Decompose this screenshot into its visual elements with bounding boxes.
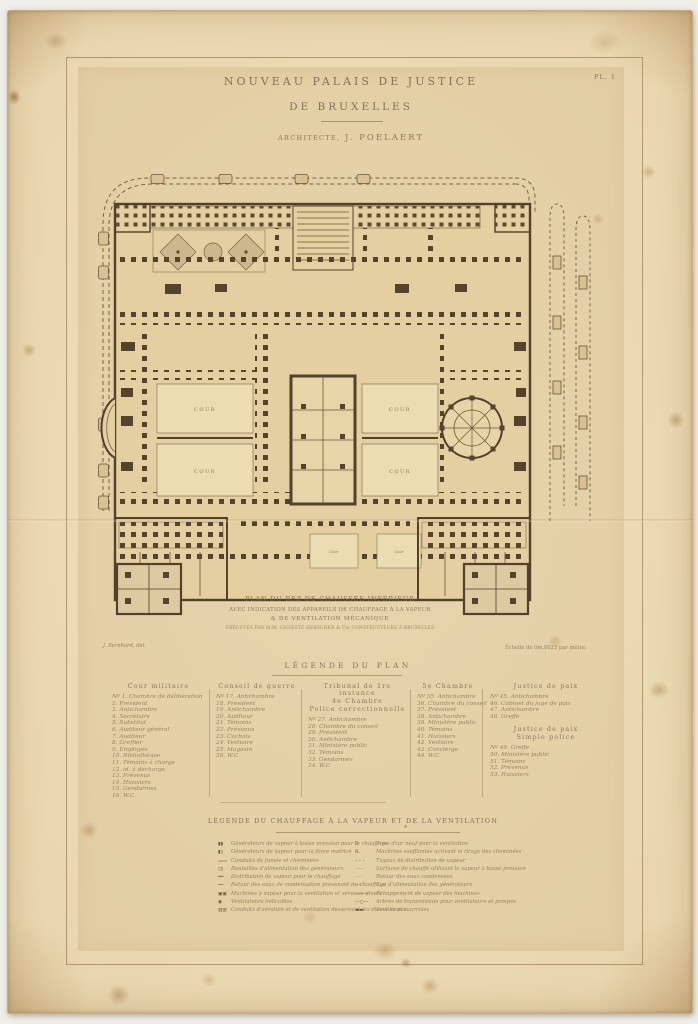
legend-item: R. Machines soufflantes activant le tira… bbox=[355, 849, 545, 857]
legend-item: ╍╍ Retour des eaux de condensation prove… bbox=[218, 882, 368, 890]
legend-column-title: Cour militaire bbox=[112, 683, 205, 690]
title-divider bbox=[321, 121, 383, 122]
legend-column-title: Simple police bbox=[490, 734, 602, 741]
legend-items: Nº 27. Antichambre28. Chambre du conseil… bbox=[308, 717, 407, 770]
legend-item: Nº 17. Antichambre bbox=[216, 694, 298, 701]
small-court-label: Cour bbox=[395, 550, 404, 554]
legend-item: 21. Témoins bbox=[216, 720, 298, 727]
legend-items: Nº 49. Greffe50. Ministère public51. Tém… bbox=[490, 745, 602, 778]
legend-item: 53. Huissiers bbox=[490, 772, 602, 779]
legend-item: 26. W.C. bbox=[216, 753, 298, 760]
rotunda-icon bbox=[440, 396, 505, 461]
legend-items: Nº 45. Antichambre46. Cabinet du juge de… bbox=[490, 694, 602, 720]
legend-symbol-icon: ◉ bbox=[218, 900, 231, 905]
legend-symbol-icon: ——— bbox=[355, 892, 376, 897]
legend-item: 41. Huissiers bbox=[417, 734, 479, 741]
legend-item: 2. Président bbox=[112, 701, 205, 708]
column-divider bbox=[301, 689, 302, 797]
paper-sheet: PL. 1 NOUVEAU PALAIS DE JUSTICE DE BRUXE… bbox=[7, 10, 693, 1014]
courtyard-label: COUR bbox=[389, 469, 411, 475]
legend-item: Nº 27. Antichambre bbox=[308, 717, 407, 724]
legend-item: 23. Cachots bbox=[216, 734, 298, 741]
legend-item: 24. Vestiaire bbox=[216, 740, 298, 747]
legend-item: ▣▣ Machines à vapeur pour la ventilation… bbox=[218, 891, 368, 899]
legend-item: 48. Greffe bbox=[490, 714, 602, 721]
legend-item: 52. Prévenus bbox=[490, 765, 602, 772]
architect-prefix: ARCHITECTE, bbox=[278, 134, 340, 142]
legend-item: 7. Auditeur bbox=[112, 734, 205, 741]
legend-item: 43. Concierge bbox=[417, 747, 479, 754]
courtyard-label: COUR bbox=[389, 407, 411, 413]
legend-items: Nº 1. Chambre de délibération2. Présiden… bbox=[112, 694, 205, 800]
legend-column-title: Tribunal de 1re instance bbox=[308, 683, 407, 697]
legend-item: 6. Auditeur général bbox=[112, 727, 205, 734]
legend-item: 37. Président bbox=[417, 707, 479, 714]
legend-symbol-icon: —○— bbox=[355, 900, 376, 905]
legend-column-title: 5e Chambre bbox=[417, 683, 479, 690]
caption-line: & DE VENTILATION MÉCANIQUE bbox=[220, 616, 440, 622]
legend-item: 4. Secrétaire bbox=[112, 714, 205, 721]
floor-plan-drawing: COUR COUR COUR COUR bbox=[95, 166, 600, 616]
legend-item: 11. Témoins à charge bbox=[112, 760, 205, 767]
legend-symbol-icon: ▯▯ bbox=[218, 867, 231, 872]
legend-symbol-icon: ══ bbox=[218, 875, 231, 880]
caption-line: AVEC INDICATION DES APPAREILS DE CHAUFFA… bbox=[220, 607, 440, 613]
architect-line: ARCHITECTE, J. POELAERT bbox=[78, 133, 624, 143]
legend-symbol-icon: ╍╍ bbox=[218, 883, 231, 888]
heading-rule bbox=[272, 675, 402, 676]
page-subtitle: DE BRUXELLES bbox=[78, 101, 624, 113]
legend-item: 42. Vestiaire bbox=[417, 740, 479, 747]
courtyard-label: COUR bbox=[194, 407, 216, 413]
column-divider bbox=[410, 689, 411, 797]
legend-item: 5. Substitut bbox=[112, 720, 205, 727]
rail-sidings-icon bbox=[550, 204, 590, 521]
legend-item: 33. Gendarmes bbox=[308, 757, 407, 764]
legend-item: —○— Arbres de transmission pour ventilat… bbox=[355, 899, 545, 907]
legend-symbol-icon: R. bbox=[355, 850, 376, 855]
legend-item: 39. Ministère public bbox=[417, 720, 479, 727]
central-hall-icon bbox=[291, 376, 355, 504]
legend-item: 29. Président bbox=[308, 730, 407, 737]
legend-chauffage-heading: LÉGENDE DU CHAUFFAGE À LA VAPEUR ET DE L… bbox=[153, 817, 553, 825]
plan-caption: PLAN DU REZ DE CHAUSSÉE INFÉRIEUR AVEC I… bbox=[220, 595, 440, 631]
asterisk-mark: * bbox=[404, 825, 407, 832]
caption-line: EXÉCUTÉS PAR M.M. GENESTE HERSCHER & Cie… bbox=[220, 626, 440, 631]
legend-item: 50. Ministère public bbox=[490, 752, 602, 759]
legend-item: 34. W.C. bbox=[308, 763, 407, 770]
legend-item: ——— Échappement de vapeur des machines bbox=[355, 891, 545, 899]
caption-line: PLAN DU REZ DE CHAUSSÉE INFÉRIEUR bbox=[220, 595, 440, 603]
section-rule bbox=[220, 802, 386, 803]
legend-item: Nº 45. Antichambre bbox=[490, 694, 602, 701]
west-apse-icon bbox=[102, 398, 116, 458]
legend-item: ▥▥ Conduits d'aération et de ventilation… bbox=[218, 907, 368, 915]
legend-column-title: Justice de paix bbox=[490, 726, 602, 733]
heading-rule bbox=[276, 832, 460, 833]
legend-item: 18. Président bbox=[216, 701, 298, 708]
building-footprint: COUR COUR COUR COUR bbox=[102, 204, 531, 614]
legend-column-title: Police correctionnelle bbox=[308, 706, 407, 713]
legend-item: 3. Antichambre bbox=[112, 707, 205, 714]
legend-item: 31. Ministère public bbox=[308, 743, 407, 750]
legend-item: 19. Antichambre bbox=[216, 707, 298, 714]
legend-column-5e-chambre: 5e Chambre Nº 35. Antichambre36. Chambre… bbox=[417, 683, 479, 760]
legend-symbol-icon: ▮▯ bbox=[218, 850, 231, 855]
chauffage-left-column: ▮▮ Générateurs de vapeur à basse pressio… bbox=[218, 841, 368, 916]
legend-column-title: Justice de paix bbox=[490, 683, 602, 690]
legend-item: 10. Bibliothèque bbox=[112, 753, 205, 760]
legend-item: 40. Témoins bbox=[417, 727, 479, 734]
legend-symbol-icon: ▣▣ bbox=[218, 892, 231, 897]
legend-plan: Cour militaire Nº 1. Chambre de délibéra… bbox=[112, 683, 612, 813]
legend-item: 14. Huissiers bbox=[112, 780, 205, 787]
legend-item: –·– Eau d'alimentation des générateurs bbox=[355, 882, 545, 890]
page-title: NOUVEAU PALAIS DE JUSTICE bbox=[78, 75, 624, 88]
legend-item: 32. Témoins bbox=[308, 750, 407, 757]
legend-items: Nº 35. Antichambre36. Chambre du conseil… bbox=[417, 694, 479, 760]
legend-symbol-icon: F. bbox=[355, 842, 376, 847]
legend-symbol-icon: ·–·– bbox=[355, 867, 376, 872]
legend-item: 15. Gendarmes bbox=[112, 786, 205, 793]
legend-item: 16. W.C. bbox=[112, 793, 205, 800]
legend-item: 44. W.C. bbox=[417, 753, 479, 760]
legend-item: Nº 35. Antichambre bbox=[417, 694, 479, 701]
legend-column-title: 4e Chambre bbox=[308, 698, 407, 705]
legend-column-title: Conseil de guerre bbox=[216, 683, 298, 690]
legend-column-justice-de-paix: Justice de paix Nº 45. Antichambre46. Ca… bbox=[490, 683, 602, 778]
courtyard-label: COUR bbox=[194, 469, 216, 475]
legend-item: ══ Distribution de vapeur pour le chauff… bbox=[218, 874, 368, 882]
legend-column-conseil-de-guerre: Conseil de guerre Nº 17. Antichambre18. … bbox=[216, 683, 298, 760]
legend-item: 46. Cabinet du juge de paix bbox=[490, 701, 602, 708]
legend-column-tribunal: Tribunal de 1re instance 4e Chambre Poli… bbox=[308, 683, 407, 770]
legend-item: ▯▯ Bouteilles d'alimentation des générat… bbox=[218, 866, 368, 874]
legend-symbol-icon: ▥▥ bbox=[218, 908, 231, 913]
legend-item: 22. Prévenus bbox=[216, 727, 298, 734]
small-court-label: Cour bbox=[330, 550, 339, 554]
legend-item: ▬▬ Poulies et courroies bbox=[355, 907, 545, 915]
legend-item: 47. Antichambre bbox=[490, 707, 602, 714]
legend-symbol-icon: – – – bbox=[355, 859, 376, 864]
legend-symbol-icon: ▭▭ bbox=[218, 859, 231, 864]
legend-symbol-icon: –·– bbox=[355, 883, 376, 888]
legend-item: 13. Prévenus bbox=[112, 773, 205, 780]
legend-symbol-icon: · · · bbox=[355, 875, 376, 880]
legend-item: 8. Greffier bbox=[112, 740, 205, 747]
column-divider bbox=[209, 689, 210, 797]
legend-plan-heading: LÉGENDE DU PLAN bbox=[153, 661, 543, 670]
legend-item: ▭▭ Conduits de fumée et cheminées bbox=[218, 858, 368, 866]
legend-column-cour-militaire: Cour militaire Nº 1. Chambre de délibéra… bbox=[112, 683, 205, 800]
legend-symbol-icon: ▬▬ bbox=[355, 908, 376, 913]
legend-item: – – – Tuyaux de distribution de vapeur bbox=[355, 858, 545, 866]
chauffage-right-column: F. Prise d'air neuf pour la ventilation … bbox=[355, 841, 545, 916]
architect-name: J. POELAERT bbox=[345, 133, 424, 143]
draughtsman-credit: J. Bernhard, del. bbox=[103, 643, 146, 649]
scale-note: Échelle de 0m,0025 par mètre. bbox=[505, 645, 587, 651]
legend-items: Nº 17. Antichambre18. Président19. Antic… bbox=[216, 694, 298, 760]
legend-item: Nº 1. Chambre de délibération bbox=[112, 694, 205, 701]
legend-item: ▮▯ Générateurs de vapeur pour la force m… bbox=[218, 849, 368, 857]
legend-item: Nº 49. Greffe bbox=[490, 745, 602, 752]
legend-item: ·–·– Surfaces de chauffe utilisant la va… bbox=[355, 866, 545, 874]
legend-symbol-icon: ▮▮ bbox=[218, 842, 231, 847]
legend-item: 25. Magasin bbox=[216, 747, 298, 754]
